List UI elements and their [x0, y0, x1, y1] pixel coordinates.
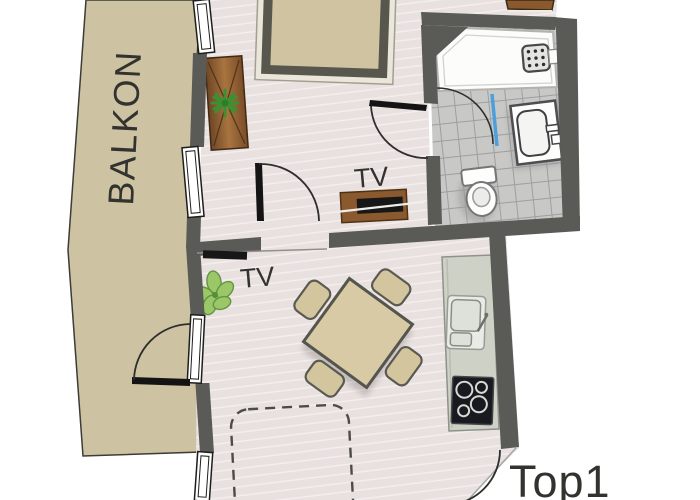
cooktop: [451, 376, 494, 424]
bed: [255, 0, 397, 84]
sink-bowl-large: [451, 299, 481, 331]
washbasin-faucet: [546, 124, 559, 131]
balcony-label: BALKON: [100, 49, 149, 206]
wall-bathroom-left-lower: [426, 156, 442, 225]
washbasin-bowl: [516, 109, 550, 157]
bedroom-tv-label: TV: [353, 161, 390, 194]
floorplan-svg: BALKON TV: [0, 0, 700, 500]
window-living-bottom: [194, 452, 212, 500]
plant-center: [212, 292, 218, 298]
wardrobe: [506, 0, 554, 10]
shower-panel-dots: [527, 49, 546, 68]
balcony-door-glass: [187, 315, 205, 384]
unit-label: Top1: [509, 456, 611, 500]
kitchen-sink: [446, 295, 489, 349]
washbasin: [506, 100, 563, 170]
living-tv-label: TV: [239, 261, 276, 294]
window-frame: [187, 315, 205, 384]
wall-left-bedroom: [190, 53, 207, 147]
window-frame: [194, 452, 212, 500]
living-tv-screen: [203, 250, 247, 260]
bed-mattress: [270, 0, 381, 69]
dresser-plant-icon: [212, 90, 238, 116]
floorplan-canvas: BALKON TV: [0, 0, 700, 500]
sink-bowl-small: [450, 332, 471, 346]
